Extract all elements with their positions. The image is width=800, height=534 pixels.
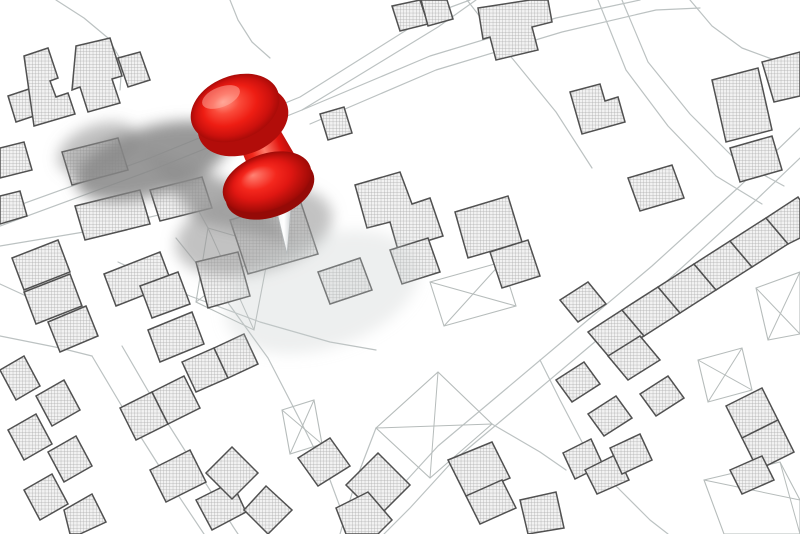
cadastral-map [0,0,800,534]
building-footprint [520,492,564,534]
map-screenshot [0,0,800,534]
